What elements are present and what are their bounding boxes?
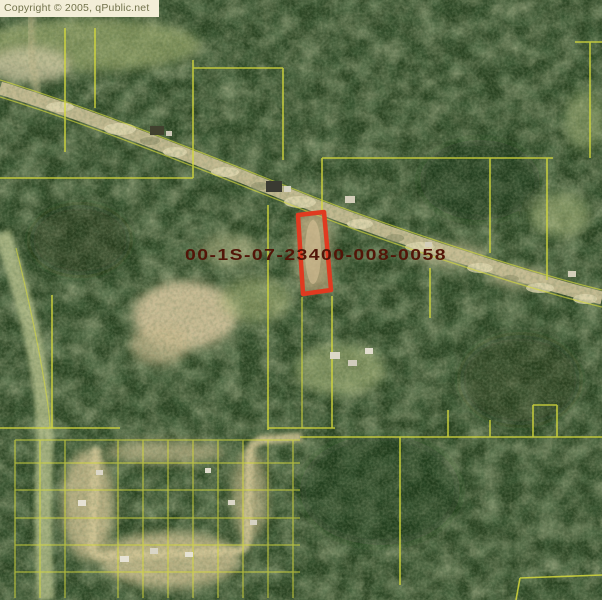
parcel-id-label: 00-1S-07-23400-008-0058 <box>185 247 447 264</box>
canopy-texture <box>0 0 602 600</box>
copyright-text: Copyright © 2005, qPublic.net <box>4 2 149 14</box>
qpublic-map-view: 00-1S-07-23400-008-0058 Copyright © 2005… <box>0 0 602 600</box>
aerial-map-canvas[interactable]: 00-1S-07-23400-008-0058 <box>0 0 602 600</box>
copyright-banner: Copyright © 2005, qPublic.net <box>0 0 159 17</box>
